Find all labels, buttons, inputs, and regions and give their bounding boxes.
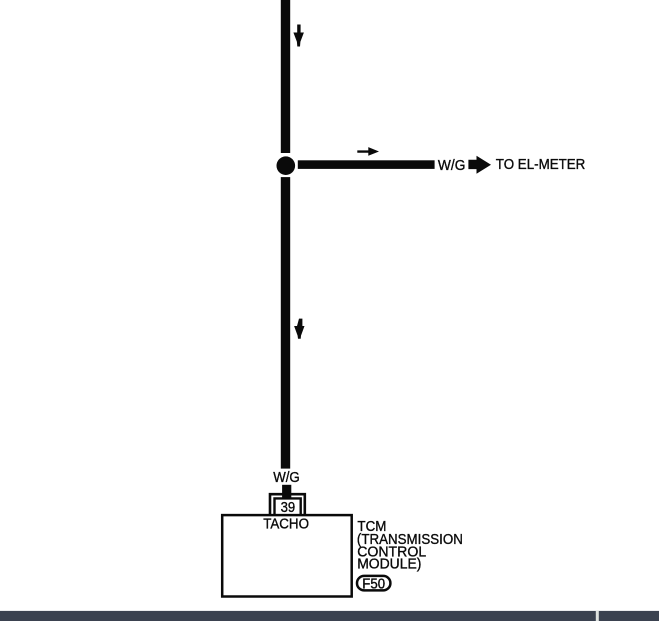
svg-text:TACHO: TACHO [263, 517, 309, 533]
svg-text:39: 39 [281, 500, 296, 516]
svg-text:F50: F50 [362, 577, 385, 593]
svg-text:MODULE): MODULE) [357, 557, 421, 573]
svg-text:W/G: W/G [273, 470, 300, 486]
svg-text:TO EL-METER: TO EL-METER [496, 157, 586, 173]
svg-text:W/G: W/G [438, 158, 466, 174]
